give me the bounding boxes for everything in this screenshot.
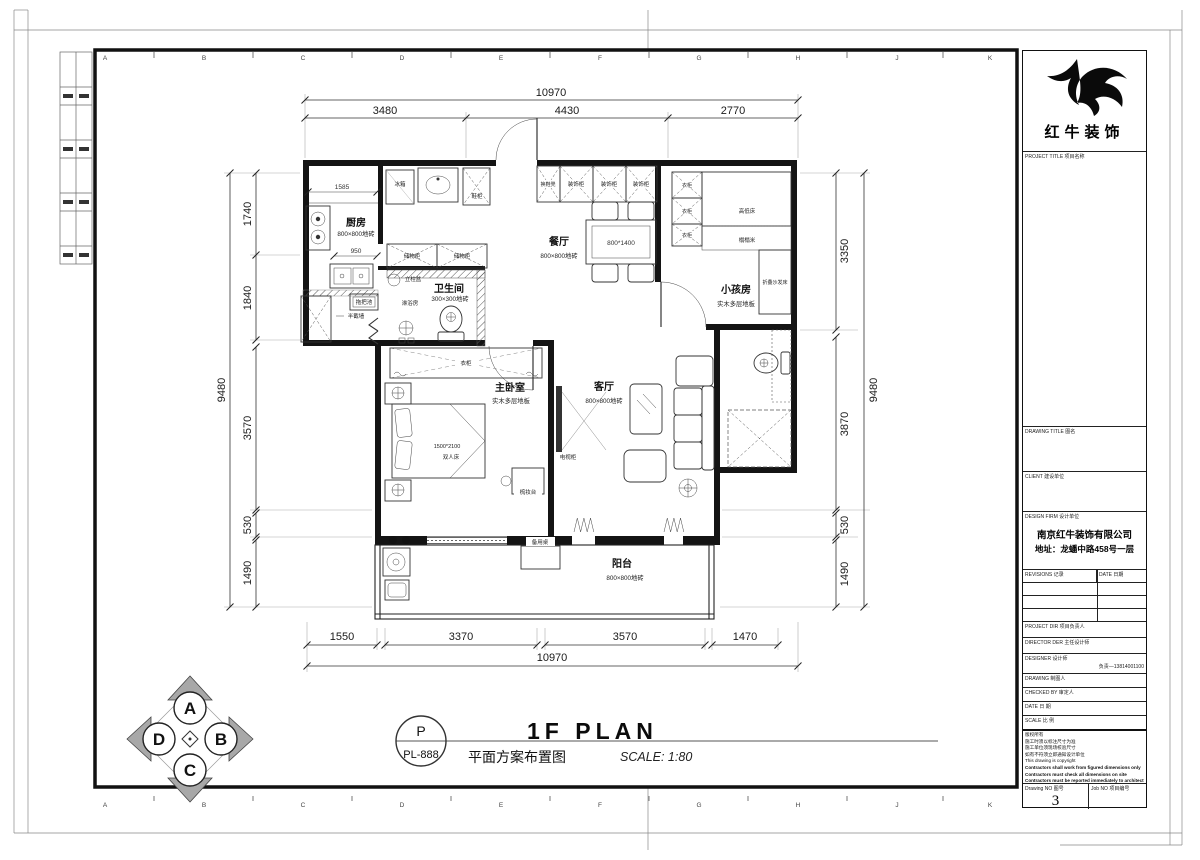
dim-label: 950	[351, 248, 362, 255]
dim-label: 1470	[733, 631, 757, 643]
note-line: 版权所有	[1025, 732, 1144, 739]
dim-label: 3350	[839, 239, 851, 263]
master-floor-label: 实木多层地板	[492, 396, 530, 405]
deco-cabinet-label: 装饰柜	[601, 180, 618, 188]
kitchen-dims: 1585 950	[305, 184, 381, 260]
dim-label: 3570	[613, 631, 637, 643]
wardrobe-label: 衣柜	[682, 232, 692, 239]
shoe-cabinet-label: 鞋柜	[471, 192, 483, 200]
entry-door	[496, 118, 537, 160]
field-drawing: DRAWING 制图人	[1023, 674, 1146, 683]
field-drawing-title: DRAWING TITLE 图名	[1023, 427, 1146, 436]
drawing-sheet: A B C D E F G H J K A B C D E F G H J K	[0, 0, 1200, 860]
dim-label: 1490	[242, 561, 254, 585]
dim-label: 530	[839, 516, 851, 534]
grid-letter: F	[598, 802, 602, 809]
storage-cabinets: 储物柜 储物柜	[387, 244, 487, 268]
title-block: 红牛装饰 PROJECT TITLE 项目名称 DRAWING TITLE 图名…	[1022, 50, 1147, 808]
grid-letter: D	[400, 802, 405, 809]
dim-label: 3570	[242, 416, 254, 440]
fridge-icon: 冰箱	[386, 170, 414, 204]
pedestal-basin-label: 立柱盆	[405, 275, 422, 283]
kids-room-door	[661, 282, 706, 327]
dining-set: 800*1400	[586, 202, 656, 282]
storage-cabinet-label: 储物柜	[454, 252, 471, 260]
master-bedroom: 衣柜 1500*2100 双人床 梳妆台 主卧室 实木多层地板	[385, 348, 606, 501]
compass-letter: C	[184, 761, 196, 780]
grid-letter: A	[103, 802, 108, 809]
balcony-label: 阳台	[612, 557, 632, 570]
grid-letters-top: A B C D E F G H J K	[103, 52, 993, 62]
master-label: 主卧室	[495, 381, 525, 394]
grid-letter: E	[499, 55, 504, 62]
dim-label: 9480	[868, 378, 880, 402]
mop-pool: 拖把池	[350, 294, 378, 310]
field-revisions: REVISIONS 记录	[1023, 570, 1097, 582]
wardrobe-label: 衣柜	[682, 182, 692, 189]
dining-room: 换鞋凳 装饰柜 装饰柜 装饰柜 800*1400 餐厅 800×800地砖	[537, 166, 657, 282]
dim-label: 1740	[242, 202, 254, 226]
shower-icon	[399, 321, 414, 343]
grid-letter: B	[202, 55, 206, 62]
grid-letter: K	[988, 802, 993, 809]
shower-room-label: 淋浴房	[402, 299, 419, 307]
sofa	[674, 356, 714, 470]
kitchen-floor-label: 800×800地砖	[337, 229, 375, 238]
grid-letter: D	[400, 55, 405, 62]
compass-letter: B	[215, 730, 227, 749]
dim-label: 3480	[373, 105, 397, 117]
dim-label: 4430	[555, 105, 579, 117]
kids-floor-label: 实木多层地板	[717, 299, 755, 308]
balcony-floor-label: 800×800地砖	[606, 573, 644, 582]
bathroom-label: 卫生间	[434, 282, 464, 295]
grid-letter: J	[895, 802, 898, 809]
curtain-symbol	[574, 518, 594, 532]
dim-label: 3370	[449, 631, 473, 643]
storage-cabinet-label: 储物柜	[404, 252, 421, 260]
drawing-no-cell: Drawing NO 图号 3	[1023, 784, 1089, 809]
grid-letter: C	[301, 55, 306, 62]
double-bed: 1500*2100 双人床	[392, 404, 485, 478]
shoe-bench-label: 换鞋凳	[540, 181, 555, 188]
plant-icon	[679, 479, 697, 497]
job-no-cell: Job NO 项目编号	[1089, 784, 1146, 809]
entry-basin-icon	[418, 168, 458, 202]
tatami-label: 榻榻米	[739, 236, 756, 244]
deco-cabinet-label: 装饰柜	[568, 180, 585, 188]
tv-cabinet-label: 电视柜	[560, 453, 577, 461]
bed-size-label: 1500*2100	[434, 444, 461, 450]
field-client: CLIENT 建设单位	[1023, 472, 1146, 481]
grid-letter: B	[202, 802, 206, 809]
kids-room-label: 小孩房	[720, 283, 751, 296]
grid-letter: C	[301, 802, 306, 809]
nightstands	[385, 383, 411, 501]
wardrobe-label: 衣柜	[682, 208, 692, 215]
dresser: 梳妆台	[501, 468, 544, 496]
grid-letters-bottom: A B C D E F G H J K	[103, 796, 993, 809]
field-design-firm: DESIGN FIRM 设计单位	[1023, 512, 1146, 521]
note-line: 施工单位须现场校验尺寸	[1025, 745, 1144, 752]
grid-letter: A	[103, 55, 108, 62]
dining-floor-label: 800×800地砖	[540, 251, 578, 260]
ac-platform	[728, 410, 791, 467]
grid-letter: H	[796, 55, 801, 62]
field-date: DATE 日 期	[1023, 702, 1146, 711]
revision-strip	[60, 52, 92, 264]
field-checked: CHECKED BY 审定人	[1023, 688, 1146, 697]
shoe-cabinet: 鞋柜	[463, 168, 490, 205]
grid-letter: E	[499, 802, 504, 809]
dim-label: 1490	[839, 562, 851, 586]
ottoman	[624, 450, 666, 482]
balcony-windows	[375, 545, 714, 619]
dining-label: 餐厅	[548, 235, 569, 248]
designer-phone: 负责—13814001100	[1023, 663, 1146, 671]
kitchen-label: 厨房	[346, 216, 366, 229]
dim-label: 2770	[721, 105, 745, 117]
firm-name: 南京红牛装饰有限公司	[1023, 527, 1146, 541]
plan-title-en: 1F PLAN	[527, 718, 658, 744]
dresser-label: 梳妆台	[520, 488, 537, 496]
living-room: 客厅 800×800地砖	[574, 356, 714, 532]
kids-wardrobes: 衣柜 衣柜 衣柜	[672, 172, 702, 246]
half-wall-label: 半截墙	[348, 312, 365, 320]
bathroom: 立柱盆 淋浴房 卫生间 300×300地砖	[388, 274, 469, 343]
dining-table-size: 800*1400	[607, 240, 635, 247]
washer-icon	[383, 548, 410, 576]
wc-nook	[728, 330, 791, 467]
spare-table: 备用桌	[521, 537, 560, 569]
field-project-title: PROJECT TITLE 项目名称	[1023, 152, 1146, 161]
walls	[303, 160, 797, 545]
field-project-dir: PROJECT DIR 项目负责人	[1023, 622, 1146, 631]
balcony: 备用桌 阳台 800×800地砖	[383, 536, 644, 600]
dim-label: 3870	[839, 412, 851, 436]
bunk-bed-label: 高低床	[739, 207, 756, 215]
entry-nook: 冰箱 鞋柜 储物柜 储物柜	[386, 168, 490, 268]
master-wardrobe: 衣柜	[390, 348, 542, 378]
note-line: This drawing is copyright	[1025, 758, 1144, 765]
balcony-sink-icon	[385, 580, 409, 600]
compass-letter: A	[184, 699, 196, 718]
fridge-label: 冰箱	[394, 180, 406, 188]
note-line: 施工时须以标注尺寸为准	[1025, 739, 1144, 746]
shoe-bench: 换鞋凳	[537, 166, 560, 202]
field-designer: DESIGNER 设计师	[1023, 654, 1146, 663]
grid-letter: G	[696, 802, 701, 809]
dim-label: 10970	[536, 87, 567, 99]
stamp-code: PL-888	[403, 749, 438, 761]
glass-table	[630, 384, 662, 434]
note-line: Contractors shall work from figured dime…	[1025, 765, 1144, 772]
orientation-compass: A B C D	[127, 676, 253, 802]
job-no-label: Job NO 项目编号	[1089, 784, 1146, 793]
grid-letter: F	[598, 55, 602, 62]
mop-pool-label: 拖把池	[356, 298, 373, 306]
bathroom-floor-label: 300×300地砖	[431, 294, 469, 303]
drawing-no-value: 3	[1023, 793, 1088, 810]
deco-cabinets: 装饰柜 装饰柜 装饰柜	[560, 166, 657, 202]
kitchen-sink-icon	[330, 264, 373, 288]
deco-cabinet-label: 装饰柜	[633, 180, 650, 188]
curtain-symbol	[664, 518, 684, 532]
plan-title-cn: 平面方案布置图	[468, 749, 566, 765]
firm-address: 地址：龙蟠中路458号一层	[1023, 543, 1146, 555]
footer-title: P PL-888 1F PLAN 平面方案布置图 SCALE: 1:80	[396, 716, 938, 766]
stamp-letter: P	[416, 723, 425, 739]
grid-letter: J	[895, 55, 898, 62]
folding-sofa-bed: 折叠沙发床	[759, 250, 791, 314]
living-label: 客厅	[593, 380, 614, 393]
brand-logo-icon	[1035, 55, 1135, 117]
folding-sofa-bed-label: 折叠沙发床	[762, 279, 787, 286]
plan-scale: SCALE: 1:80	[620, 750, 692, 764]
dim-label: 1550	[330, 631, 354, 643]
dim-label: 1585	[335, 184, 350, 191]
dim-label: 10970	[537, 652, 568, 664]
living-floor-label: 800×800地砖	[585, 396, 623, 405]
spare-table-label: 备用桌	[532, 538, 549, 546]
drawing-no-label: Drawing NO 图号	[1023, 784, 1088, 793]
brand-name: 红牛装饰	[1023, 121, 1146, 142]
grid-letter: H	[796, 802, 801, 809]
stove-icon	[306, 206, 330, 250]
plan-canvas: A B C D E F G H J K A B C D E F G H J K	[0, 0, 1200, 860]
toilet-icon	[438, 306, 464, 341]
dim-label: 530	[242, 516, 254, 534]
note-line: 如有不符须立即通知设计单位	[1025, 752, 1144, 759]
field-scale: SCALE 比 例	[1023, 716, 1146, 725]
wardrobe-label: 衣柜	[460, 359, 472, 367]
grid-letter: G	[696, 55, 701, 62]
dim-label: 1840	[242, 286, 254, 310]
compass-letter: D	[153, 730, 165, 749]
dim-label: 9480	[216, 378, 228, 402]
kitchen: 拖把池 半截墙 厨房 800×800地砖 1585 950	[301, 184, 381, 342]
bunk-bed: 高低床 榻榻米	[702, 172, 791, 250]
double-bed-label: 双人床	[443, 453, 460, 461]
field-director: DIRECTOR DER 主任设计师	[1023, 638, 1146, 647]
grid-letter: K	[988, 55, 993, 62]
note-line: Contractors must check all dimensions on…	[1025, 772, 1144, 779]
